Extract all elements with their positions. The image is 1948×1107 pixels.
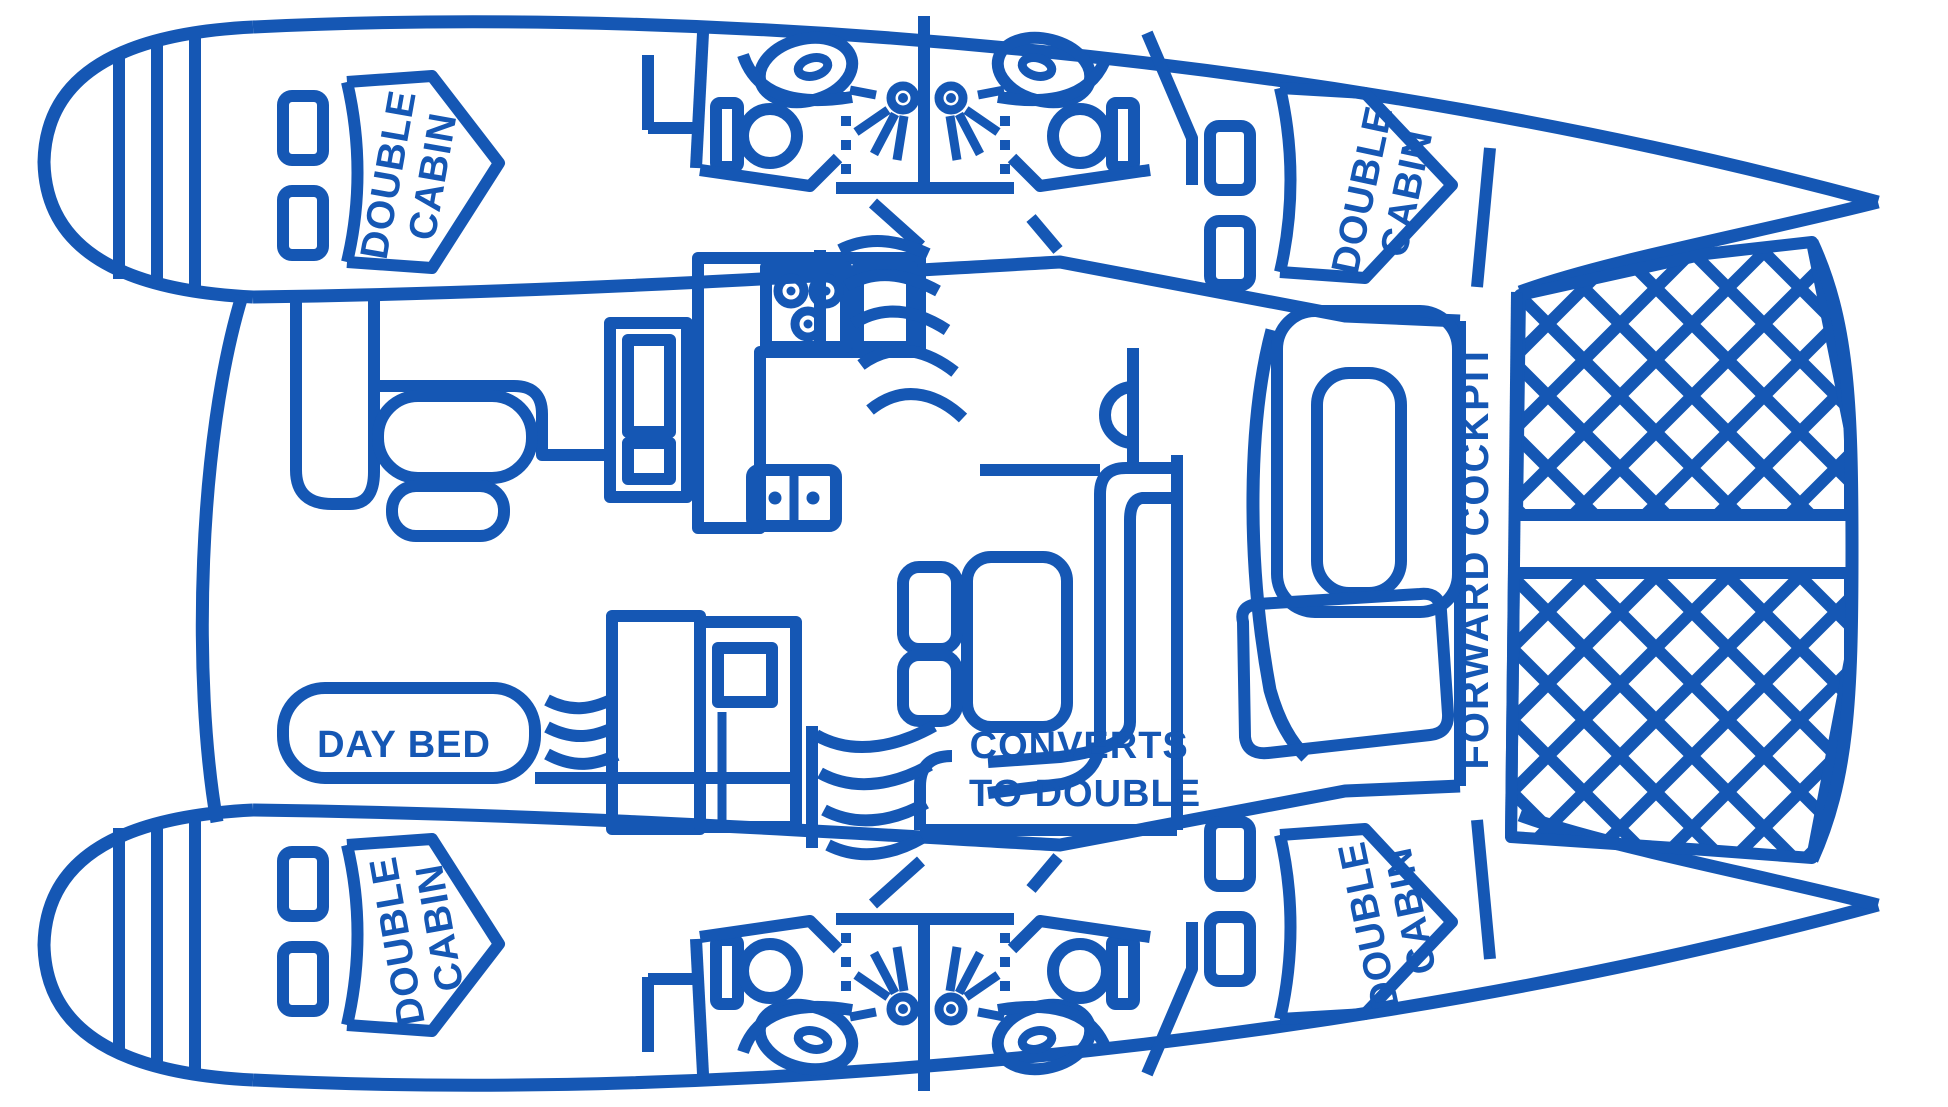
sink-icon <box>1053 103 1134 167</box>
seat-icon <box>392 486 504 536</box>
shower-head-icon <box>939 86 1004 160</box>
nav-cabinet <box>610 323 687 497</box>
seat-icon <box>903 567 957 649</box>
seat-back <box>1317 373 1401 593</box>
window-icon <box>1210 126 1250 190</box>
mast-post-seat <box>980 348 1133 470</box>
label-day-bed: DAY BED <box>317 724 491 766</box>
trampoline-net-icon <box>1511 242 1852 860</box>
closet-wall <box>648 55 698 130</box>
window-icon <box>283 96 323 160</box>
aft-bathroom <box>700 29 859 186</box>
toilet-icon <box>991 29 1107 112</box>
label-forward-cockpit: FORWARD COCKPIT <box>1453 342 1497 769</box>
window-icon <box>283 191 323 255</box>
net-bottom <box>1511 573 1850 858</box>
catamaran-floorplan: DOUBLE CABIN DOUBLE CABIN DOUBLE CABIN D… <box>0 0 1948 1107</box>
aft-double-cabin <box>283 33 703 268</box>
sink-icon <box>716 103 797 167</box>
seat-icon <box>296 300 374 504</box>
table-icon <box>378 396 532 478</box>
saloon-settee <box>296 300 610 536</box>
shower-head-icon <box>850 86 915 160</box>
cabin-bulkhead <box>1147 33 1192 185</box>
table-icon <box>967 557 1067 727</box>
cabin-bulkhead <box>696 33 703 168</box>
aft-deck-edge <box>202 296 242 822</box>
bow-bulkhead <box>1477 148 1490 287</box>
stern-platform <box>44 27 253 297</box>
net-aft-edge <box>1511 292 1517 838</box>
cabinet-units <box>612 616 796 829</box>
window-icon <box>1210 221 1250 285</box>
net-top <box>1517 242 1850 515</box>
seat-icon <box>1277 311 1458 612</box>
net-beam <box>1516 515 1850 573</box>
seat-icon <box>903 655 957 721</box>
forward-cockpit <box>1242 311 1458 757</box>
